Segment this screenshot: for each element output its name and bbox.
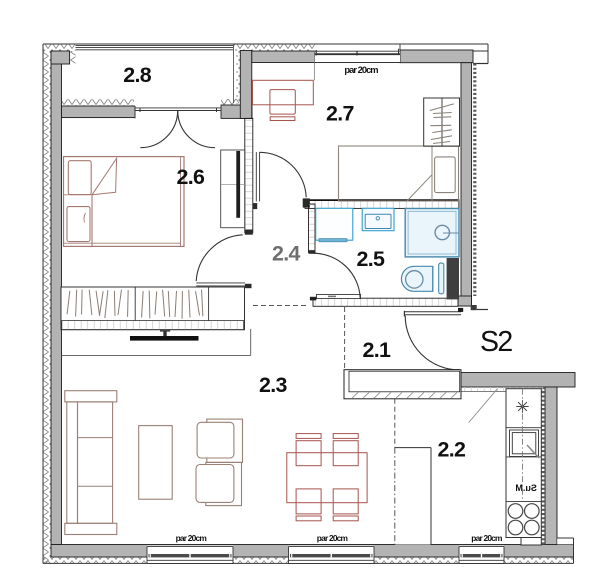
svg-text:2.5: 2.5 [357, 247, 385, 271]
svg-text:2.3: 2.3 [259, 373, 287, 397]
svg-text:par 20cm: par 20cm [344, 65, 378, 75]
svg-text:2.7: 2.7 [326, 102, 354, 126]
svg-text:2.6: 2.6 [177, 165, 205, 189]
svg-text:par 20cm: par 20cm [176, 533, 207, 543]
svg-text:2.1: 2.1 [363, 338, 391, 362]
svg-text:par 20cm: par 20cm [317, 533, 348, 543]
svg-text:2.8: 2.8 [123, 63, 151, 87]
svg-text:Su.M: Su.M [515, 483, 537, 493]
svg-text:2.4: 2.4 [272, 241, 300, 265]
svg-text:2.2: 2.2 [438, 437, 466, 461]
svg-text:par 20cm: par 20cm [471, 533, 502, 543]
svg-text:S2: S2 [480, 326, 512, 358]
